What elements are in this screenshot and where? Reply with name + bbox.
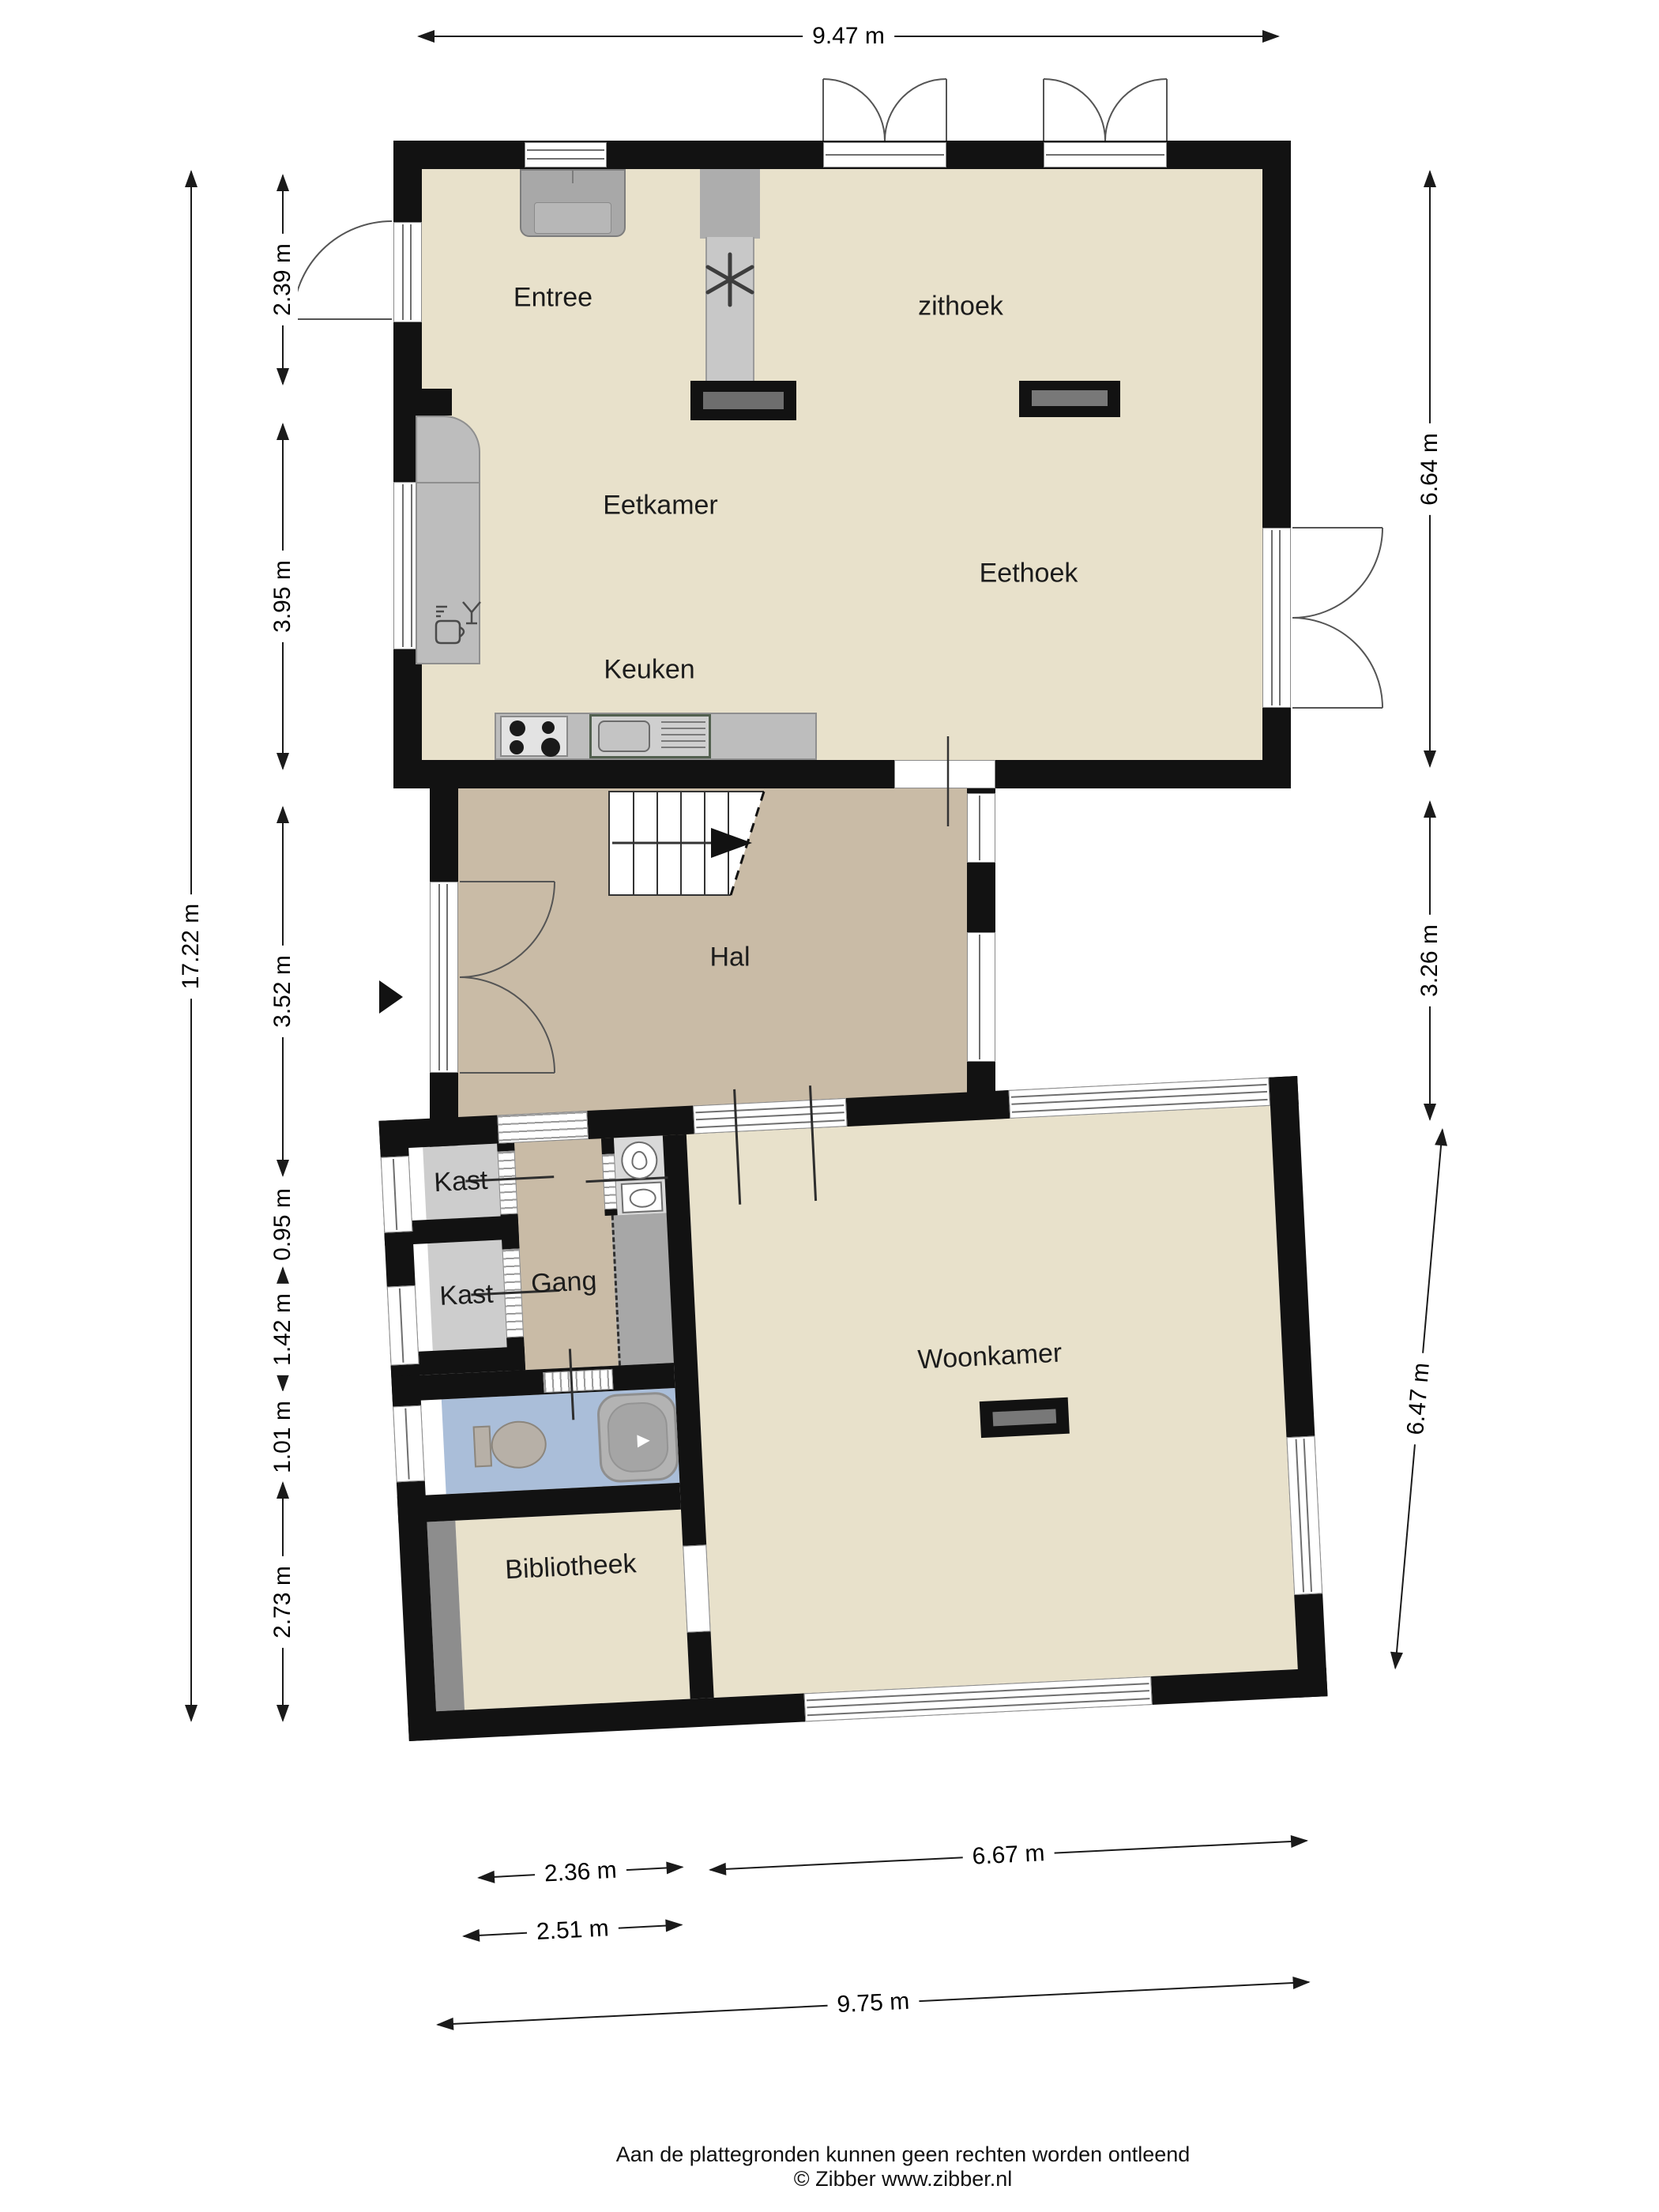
floor-bibliotheek	[455, 1510, 690, 1710]
dim-left-3: 3.52 m	[272, 806, 294, 1177]
dim-label-top: 9.47 m	[803, 21, 894, 51]
dim-left-5: 1.42 m	[272, 1266, 294, 1392]
window-wing-west-3	[393, 1405, 425, 1483]
room-label-gang: Gang	[530, 1266, 597, 1300]
disclaimer: Aan de plattegronden kunnen geen rechten…	[616, 2142, 1191, 2191]
room-label-bibliotheek: Bibliotheek	[504, 1548, 637, 1586]
window-wing-west-1	[381, 1156, 413, 1233]
room-label-kast-2: Kast	[438, 1279, 494, 1312]
door-badkamer	[543, 1369, 613, 1393]
dim-label-left-overall: 17.22 m	[176, 893, 206, 998]
door-gang-hal	[497, 1111, 589, 1144]
tv-cabinet-woonkamer	[980, 1398, 1070, 1438]
bathtub-faucet-icon	[637, 1435, 650, 1448]
bath-toilet-tank	[473, 1425, 493, 1467]
dim-right-1: 6.64 m	[1419, 170, 1441, 768]
disclaimer-line1: Aan de plattegronden kunnen geen rechten…	[616, 2142, 1191, 2167]
dim-left-6: 1.01 m	[272, 1392, 294, 1481]
window-wing-west-2	[387, 1285, 419, 1366]
disclaimer-line2: © Zibber www.zibber.nl	[616, 2167, 1191, 2191]
dim-left-4: 0.95 m	[272, 1183, 294, 1266]
room-label-kast-1: Kast	[433, 1165, 488, 1198]
dim-left-2: 3.95 m	[272, 423, 294, 770]
door-bibliotheek	[683, 1544, 710, 1632]
bathtub	[596, 1391, 679, 1484]
wc-basin-icon	[621, 1181, 664, 1213]
dim-left-1: 2.39 m	[272, 174, 294, 386]
lower-wing: Kast Kast Gang Woonkamer Bibliotheek	[0, 0, 1659, 2212]
tv-screen-woonkamer	[992, 1409, 1056, 1426]
floor-void	[611, 1213, 676, 1365]
door-kast-1	[498, 1151, 518, 1215]
dim-left-7: 2.73 m	[272, 1481, 294, 1722]
dim-right-2: 3.26 m	[1419, 800, 1441, 1121]
dim-top-width: 9.47 m	[417, 24, 1280, 49]
dim-left-overall: 17.22 m	[180, 170, 202, 1722]
floorplan-canvas: Entree zithoek Eetkamer Keuken Eethoek H…	[0, 0, 1659, 2212]
